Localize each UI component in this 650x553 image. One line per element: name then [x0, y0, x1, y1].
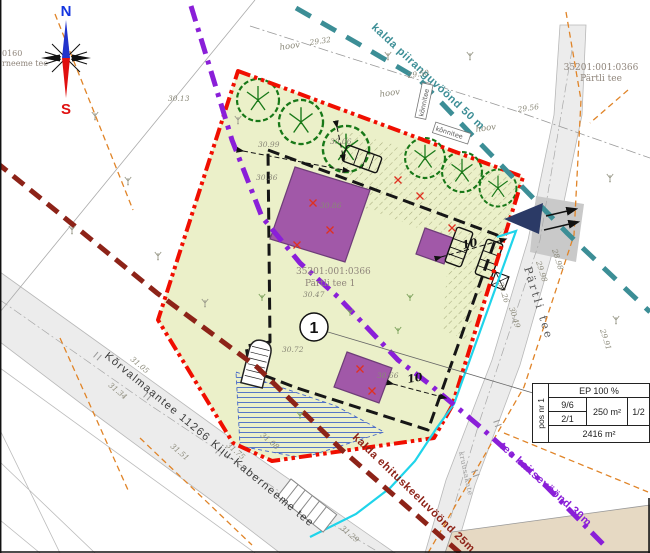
elevation-label: 30.99 [258, 140, 280, 149]
hoov-label: hoov [379, 87, 401, 100]
table-ratio-cell: 1/2 [628, 398, 649, 425]
table-plot-area-cell: 2416 m² [549, 426, 649, 442]
elevation-label: 29.56 [516, 102, 540, 114]
table-floors-a: 9/6 [549, 398, 586, 412]
dimension-label: 10 [406, 370, 424, 386]
parcel-label-subject-code: 35201:001:0366 [296, 267, 371, 277]
elevation-label: 30.06 [330, 137, 352, 146]
site-plan-page: 10 10 1 kõnnitee kõnnitee [0, 0, 650, 553]
parcel-label-ne-name: Pärtli tee [580, 74, 622, 84]
edge-label-cut-2: rneeme tee [2, 59, 48, 68]
compass-rose-icon: N S [41, 3, 91, 118]
table-ep-cell: EP 100 % [549, 384, 649, 398]
elevation-label: 30.36 [256, 173, 278, 182]
elevation-label: 30.86 [320, 201, 342, 210]
zone-label-tee: tee kaitsevöönd 30m [497, 440, 594, 529]
parcel-label-ne-code: 35201:001:0366 [564, 63, 639, 73]
table-floors-cells: 9/6 2/1 [549, 398, 587, 425]
elevation-label: 30.47 [303, 290, 325, 299]
compass-south: S [61, 101, 71, 118]
elevation-label: 30.26 [496, 281, 511, 304]
elevation-label: 29.91 [598, 327, 614, 351]
parcel-label-subject-name: Pärtli tee 1 [305, 279, 355, 289]
boxed-label: kõnnitee [415, 83, 433, 120]
elevation-label: 30.13 [168, 94, 190, 103]
elevation-label: 29.32 [308, 35, 332, 47]
elevation-label: 30.66 [377, 371, 399, 380]
table-pos-label: pos nr 1 [536, 398, 546, 429]
parcel-lines-bottom-left [0, 430, 95, 553]
hoov-label: hoov [475, 122, 497, 135]
edge-label-cut-1: 0160 [2, 49, 22, 58]
table-floors-b: 2/1 [549, 412, 586, 425]
table-building-area-cell: 250 m² [587, 398, 628, 425]
building-rights-table: pos nr 1 EP 100 % 9/6 2/1 250 m² 1/2 241… [532, 383, 650, 443]
compass-north: N [61, 3, 72, 20]
elevation-label: 30.72 [282, 345, 304, 354]
position-number: 1 [310, 320, 319, 337]
hoov-label: hoov [279, 40, 301, 53]
table-pos-column: pos nr 1 [533, 384, 549, 442]
site-plan-drawing: 10 10 1 kõnnitee kõnnitee [0, 0, 650, 553]
